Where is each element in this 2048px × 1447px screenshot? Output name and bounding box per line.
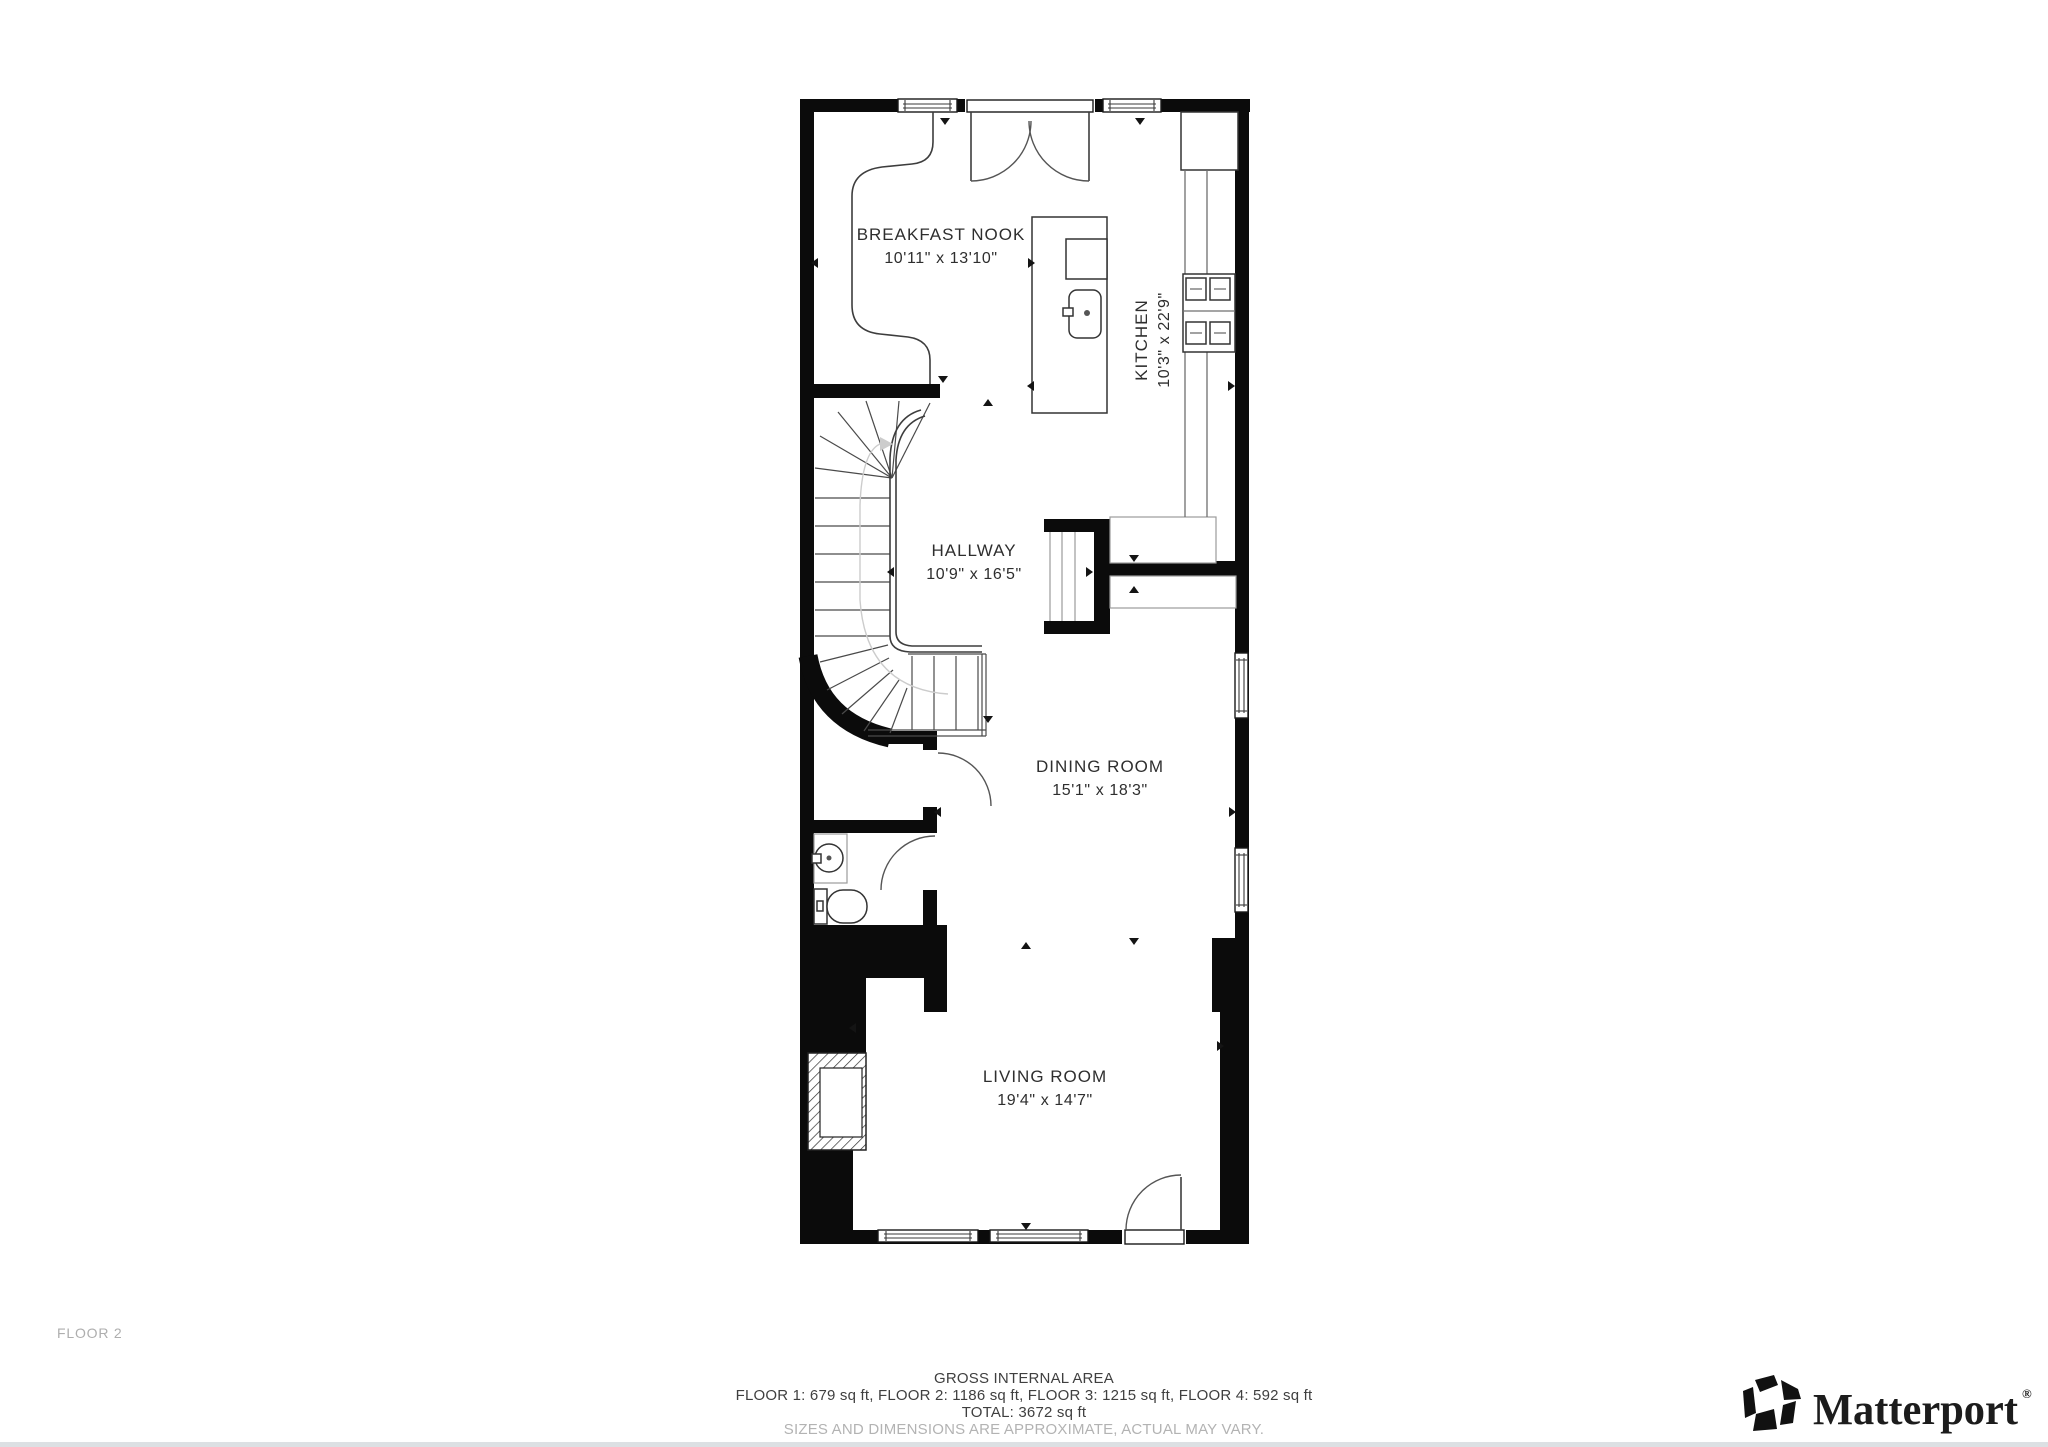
closet-door (938, 753, 991, 806)
interior-walls (800, 384, 1249, 1244)
living-room-label: LIVING ROOM (983, 1067, 1107, 1086)
window-dining-upper (1235, 653, 1248, 718)
living-room-exterior-door (1125, 1175, 1184, 1244)
kitchen-dims: 10'3" x 22'9" (1156, 292, 1173, 388)
secondary-stair (1050, 532, 1075, 621)
dining-closet (1110, 576, 1236, 608)
matterport-wordmark: Matterport (1813, 1385, 2018, 1434)
dimension-markers (811, 118, 1236, 1230)
footer-disclaimer: SIZES AND DIMENSIONS ARE APPROXIMATE, AC… (784, 1421, 1264, 1438)
floorplan-canvas: BREAKFAST NOOK 10'11" x 13'10" KITCHEN 1… (0, 0, 2048, 1447)
range-stove (1183, 274, 1235, 352)
bathroom-sink-drain (827, 856, 832, 861)
fireplace-firebox (820, 1068, 862, 1137)
sink-drain (1084, 310, 1090, 316)
bathroom-fixtures (812, 834, 867, 924)
hallway-dims: 10'9" x 16'5" (926, 566, 1022, 583)
stair-curved-wall (808, 656, 890, 738)
window-living-left (878, 1230, 978, 1242)
footer-total: TOTAL: 3672 sq ft (962, 1404, 1087, 1421)
floor-label: FLOOR 2 (57, 1325, 123, 1341)
dining-room-dims: 15'1" x 18'3" (1052, 782, 1148, 799)
toilet (814, 889, 867, 924)
floorplan-page: BREAKFAST NOOK 10'11" x 13'10" KITCHEN 1… (0, 0, 2048, 1447)
footer-floor-breakdown: FLOOR 1: 679 sq ft, FLOOR 2: 1186 sq ft,… (736, 1387, 1313, 1404)
footer: GROSS INTERNAL AREA FLOOR 1: 679 sq ft, … (736, 1370, 1313, 1438)
brand-logo: Matterport ® (1743, 1375, 2032, 1434)
hallway-label: HALLWAY (931, 541, 1016, 560)
living-room-dims: 19'4" x 14'7" (997, 1092, 1093, 1109)
registered-trademark-symbol: ® (2022, 1386, 2032, 1401)
bottom-edge-strip (0, 1442, 2048, 1447)
bathroom-faucet (812, 854, 821, 863)
window-living-right (990, 1230, 1088, 1242)
island-cooktop (1066, 239, 1107, 279)
sink-faucet (1063, 308, 1073, 316)
breakfast-nook-label: BREAKFAST NOOK (857, 225, 1026, 244)
refrigerator (1181, 112, 1238, 170)
window-dining-lower (1235, 848, 1248, 912)
fireplace (808, 1053, 866, 1150)
breakfast-nook-dims: 10'11" x 13'10" (884, 250, 997, 267)
window-top-left (898, 99, 957, 112)
pantry-closet (1110, 517, 1216, 563)
main-staircase (815, 112, 986, 736)
stair-handrail (890, 410, 982, 652)
curved-partition (852, 112, 933, 384)
footer-title: GROSS INTERNAL AREA (934, 1370, 1114, 1387)
stair-handrail-inner (896, 416, 982, 646)
kitchen-label: KITCHEN (1132, 299, 1151, 381)
dining-room-label: DINING ROOM (1036, 757, 1164, 776)
matterport-pinwheel-icon (1743, 1375, 1801, 1431)
entry-double-door (967, 100, 1093, 181)
window-top-right (1103, 99, 1161, 112)
